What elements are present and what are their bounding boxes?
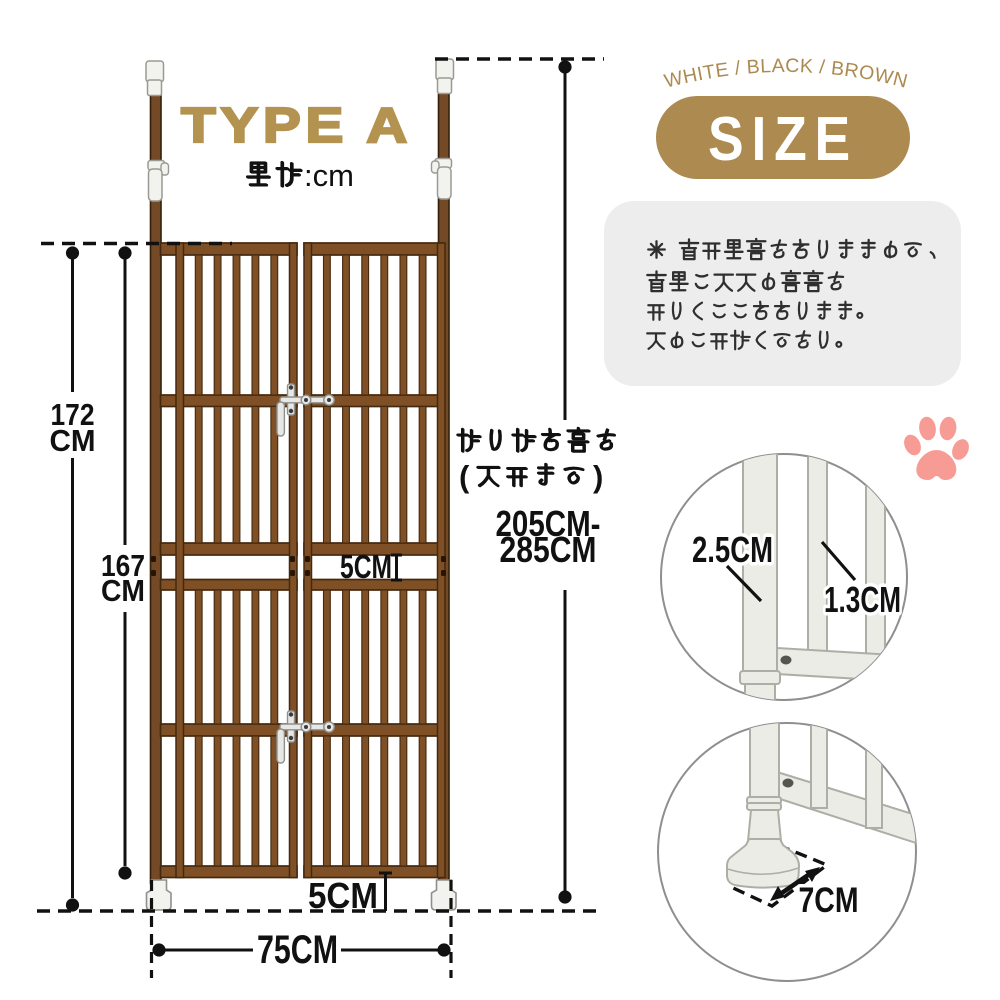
svg-text:CM: CM xyxy=(101,573,145,608)
svg-text::cm: :cm xyxy=(304,158,354,193)
svg-text:5CM: 5CM xyxy=(340,548,392,585)
svg-text:WHITE / BLACK / BROWN: WHITE / BLACK / BROWN xyxy=(662,55,910,93)
svg-text:(: ( xyxy=(459,459,470,494)
svg-text:285CM: 285CM xyxy=(500,529,597,570)
svg-text:TYPE A: TYPE A xyxy=(181,99,412,153)
svg-text:SIZE: SIZE xyxy=(708,105,858,174)
svg-text:2.5CM: 2.5CM xyxy=(692,529,773,570)
svg-text:CM: CM xyxy=(50,423,96,458)
svg-text:7CM: 7CM xyxy=(799,881,859,920)
svg-text:1.3CM: 1.3CM xyxy=(824,579,901,620)
svg-text:): ) xyxy=(593,459,603,494)
svg-text:75CM: 75CM xyxy=(257,928,338,972)
svg-text:5CM: 5CM xyxy=(308,875,378,916)
